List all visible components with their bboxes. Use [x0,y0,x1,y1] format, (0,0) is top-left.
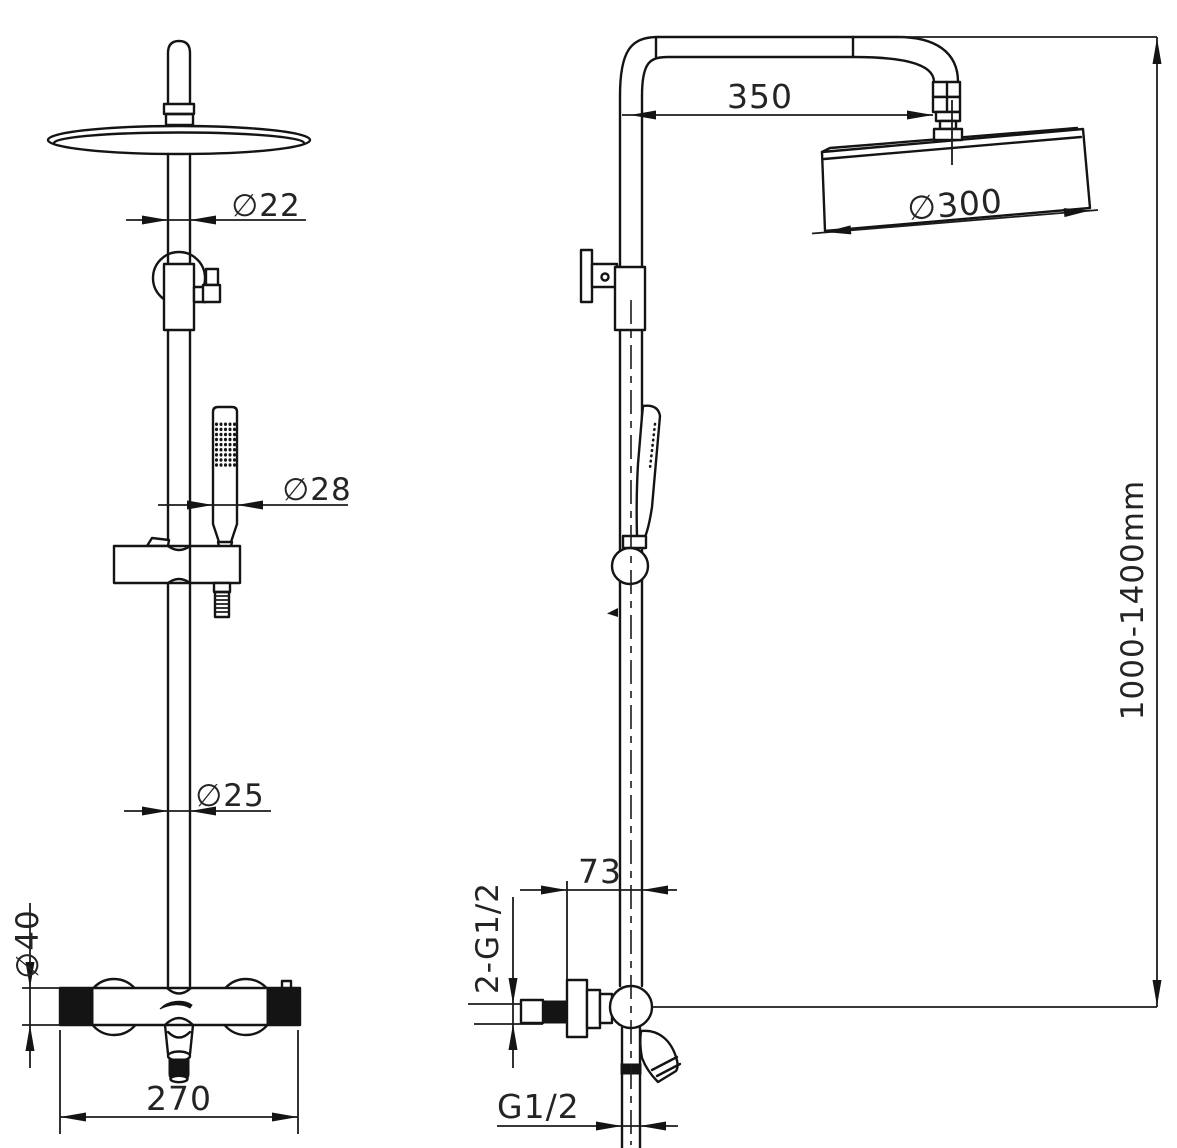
wall-flange [567,980,587,1037]
front-view: ∅22 ∅28 ∅25 [10,41,352,1134]
wall-supply-thread [543,1001,566,1023]
overhead-shower-disc [48,126,310,154]
dim-arm-projection: 350 [622,77,933,120]
dim-valve-width: 270 [60,1030,298,1134]
label-wall-offset: 73 [578,852,622,891]
label-height-range: 1000-1400mm [1115,480,1151,720]
label-pipe-diameter-top: ∅22 [231,188,300,224]
label-inlet-thread: 2-G1/2 [470,882,506,994]
technical-drawing-page: ∅22 ∅28 ∅25 [0,0,1177,1148]
label-bottom-thread: G1/2 [497,1087,580,1126]
holder-clamp-side [623,536,646,548]
holder-knob-side [612,548,648,584]
dim-bottom-thread: G1/2 [497,1087,678,1131]
wall-supply-stub [521,1000,543,1023]
hand-shower-front [213,407,237,549]
valve-left-handle-grip [60,988,93,1025]
valve-right-handle-grip [267,988,300,1025]
label-riser-diameter: ∅25 [195,778,264,814]
hose-clip-tick [607,608,618,617]
riser-pipe-lower [168,330,190,986]
holder-screw-neck [214,583,230,592]
slider-holder [114,538,240,617]
valve-body-front [60,979,300,1082]
top-pipe-cap [168,41,190,104]
dim-hand-shower-diameter: ∅28 [158,472,352,510]
dim-valve-diameter: ∅40 [10,903,60,1068]
dim-pipe-diameter-top: ∅22 [126,188,306,225]
diverter-knob-base [203,285,220,302]
arm-sleeve-ticks [656,37,853,57]
shower-column-drawing: ∅22 ∅28 ∅25 [0,0,1177,1148]
head-connector-upper [164,104,194,114]
dim-inlet-thread: 2-G1/2 [468,882,543,1068]
label-head-diameter: ∅300 [906,181,1005,228]
head-connector-lower [166,114,193,125]
dim-riser-diameter: ∅25 [124,778,271,816]
diverter-knob-top [206,269,218,285]
wall-bracket-sleeve [164,264,194,330]
riser-sleeve-side [615,267,645,330]
label-valve-width: 270 [146,1079,212,1118]
side-view: 350 ∅300 [468,37,1162,1148]
valve-button [282,981,291,988]
label-valve-diameter: ∅40 [10,909,46,978]
riser-pipe-upper [168,154,190,264]
dim-wall-offset: 73 [520,852,677,982]
spout-front [165,1025,193,1054]
label-hand-shower-diameter: ∅28 [282,472,351,508]
label-arm-projection: 350 [727,77,793,116]
